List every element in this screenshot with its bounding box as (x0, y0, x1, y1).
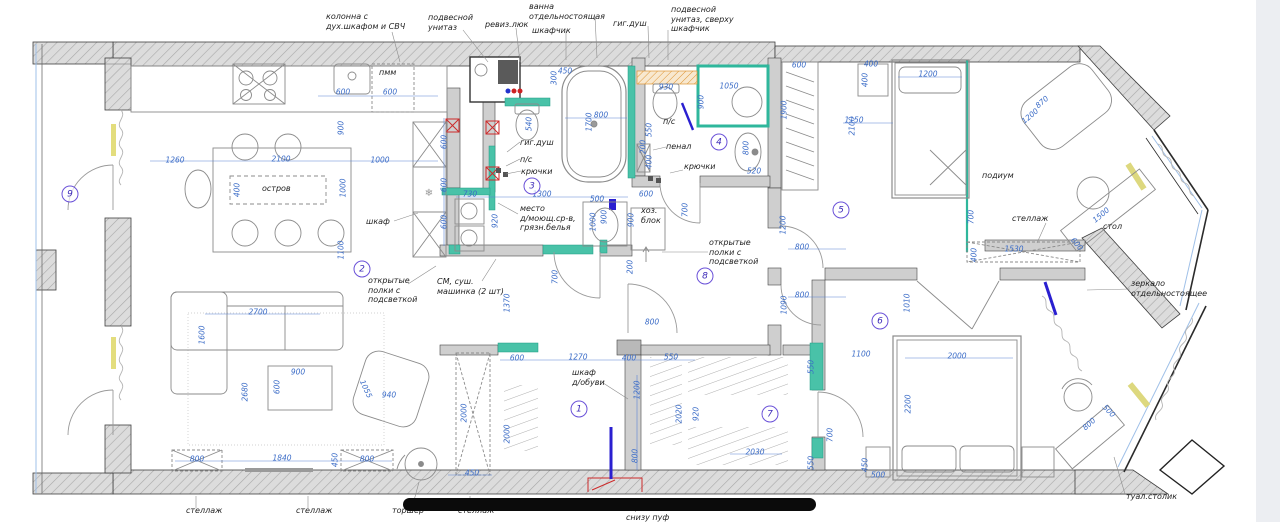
dimension-text: 800 (795, 243, 809, 252)
plan-label: крючки (684, 162, 715, 172)
dimension-text: 1000 (370, 156, 389, 165)
dimension-text: 920 (491, 214, 500, 228)
dimension-text: 520 (747, 167, 761, 176)
dimension-text: 700 (681, 203, 690, 217)
plan-label: ревиз.люк (485, 20, 528, 30)
dimension-text: 550 (664, 353, 678, 362)
plan-label: СМ, суш. машинка (2 шт) (437, 277, 504, 296)
plan-label: крючки (521, 167, 552, 177)
dimension-text: 550 (645, 123, 654, 137)
dimension-text: 200 (639, 140, 648, 154)
dimension-text: 1600 (198, 325, 207, 344)
dimension-text: 600 (336, 88, 350, 97)
dimension-text: 1100 (337, 240, 346, 259)
dimension-text: 900 (600, 210, 609, 224)
room-number-badge: 9 (62, 186, 79, 203)
dimension-text: 800 (594, 111, 608, 120)
dimension-text: 2000 (503, 424, 512, 443)
annotation-layer: колонна с дух.шкафом и СВЧподвесной унит… (0, 0, 1280, 522)
dimension-text: 2000 (947, 352, 966, 361)
room-number-badge: 7 (762, 406, 779, 423)
plan-label: шкаф (366, 217, 390, 227)
dimension-text: 450 (331, 453, 340, 467)
dimension-text: 2030 (745, 448, 764, 457)
plan-label: открытые полки с подсветкой (709, 238, 758, 267)
dimension-text: 800 (190, 455, 204, 464)
dimension-text: 1530 (1004, 245, 1023, 254)
plan-label: гиг.душ (520, 138, 554, 148)
room-number-badge: 4 (711, 134, 728, 151)
dimension-text: 900 (697, 95, 706, 109)
dimension-text: 400 (864, 60, 878, 69)
dimension-text: 1200 (633, 380, 642, 399)
dimension-text: 400 (861, 73, 870, 87)
plan-label: шкафчик (532, 26, 571, 36)
dimension-text: 600 (440, 178, 449, 192)
dimension-text: 450 (465, 469, 479, 478)
plan-label: пмм (379, 68, 396, 78)
dimension-text: 600 (273, 380, 282, 394)
room-number-badge: 1 (571, 401, 588, 418)
plan-label: подиум (982, 171, 1014, 181)
dimension-text: 500 (871, 471, 885, 480)
dimension-text: 900 (337, 121, 346, 135)
plan-label: зеркало отдельностоящее (1131, 279, 1207, 298)
plan-label: п/с (663, 117, 675, 127)
dimension-text: 2700 (248, 308, 267, 317)
room-number-badge: 6 (872, 313, 889, 330)
plan-label: остров (262, 184, 291, 194)
plan-label: шкаф д/обуви (572, 368, 605, 387)
dimension-text: 700 (967, 210, 976, 224)
dimension-text: 200 (626, 260, 635, 274)
dimension-text: 600 (792, 61, 806, 70)
dimension-text: 1900 (780, 100, 789, 119)
dimension-text: 900 (627, 213, 636, 227)
plan-label: пенал (666, 142, 691, 152)
dimension-text: 400 (622, 354, 636, 363)
plan-label: подвесной унитаз, сверху шкафчик (671, 5, 734, 34)
dimension-text: 2000 (460, 403, 469, 422)
dimension-text: 500 (1101, 403, 1117, 419)
dimension-text: 1010 (903, 293, 912, 312)
dimension-text: 1090 (780, 295, 789, 314)
dimension-text: 2680 (241, 382, 250, 401)
dimension-text: 1200 (1020, 106, 1040, 125)
dimension-text: 550 (807, 456, 816, 470)
plan-label: стеллаж (296, 506, 332, 516)
dimension-text: 540 (525, 117, 534, 131)
dimension-text: 1000 (339, 178, 348, 197)
dimension-text: 400 (645, 155, 654, 169)
dimension-text: 600 (440, 215, 449, 229)
dimension-text: 600 (510, 354, 524, 363)
dimension-text: 300 (550, 71, 559, 85)
dimension-text: 400 (233, 183, 242, 197)
plan-label: п/с (520, 155, 532, 165)
dimension-text: 550 (807, 360, 816, 374)
dimension-text: 800 (645, 318, 659, 327)
dimension-text: 2200 (904, 394, 913, 413)
dimension-text: 920 (692, 407, 701, 421)
dimension-text: 1200 (918, 70, 937, 79)
dimension-text: 1200 (779, 215, 788, 234)
dimension-text: 1050 (719, 82, 738, 91)
dimension-text: 450 (558, 67, 572, 76)
dimension-text: 1100 (851, 350, 870, 359)
plan-label: подвесной унитаз (428, 13, 473, 32)
dimension-text: 700 (826, 428, 835, 442)
dimension-text: 600 (383, 88, 397, 97)
dimension-text: 600 (440, 135, 449, 149)
plan-label: место д/моющ.ср-в, грязн.белья (520, 204, 576, 233)
dimension-text: 800 (1081, 416, 1098, 432)
plan-label: стеллаж (1012, 214, 1048, 224)
dimension-text: 1840 (272, 454, 291, 463)
dimension-text: 400 (970, 248, 979, 262)
plan-label: туал.столик (1126, 492, 1177, 502)
dimension-text: 900 (291, 368, 305, 377)
dimension-text: 800 (742, 141, 751, 155)
dimension-text: 1260 (165, 156, 184, 165)
plan-label: колонна с дух.шкафом и СВЧ (326, 12, 405, 31)
redaction-bar (403, 498, 816, 511)
dimension-text: 930 (659, 83, 673, 92)
dimension-text: 700 (551, 270, 560, 284)
plan-label: ванна отдельностоящая (529, 2, 605, 21)
plan-label: стеллаж (186, 506, 222, 516)
dimension-text: 800 (360, 455, 374, 464)
dimension-text: 2100 (848, 116, 857, 135)
dimension-text: 600 (1069, 236, 1085, 253)
dimension-text: 2100 (271, 155, 290, 164)
dimension-text: 1270 (568, 353, 587, 362)
dimension-text: 800 (631, 449, 640, 463)
room-number-badge: 8 (697, 268, 714, 285)
dimension-text: 1000 (589, 212, 598, 231)
floor-plan-canvas: ❄ (0, 0, 1280, 522)
room-number-badge: 2 (354, 261, 371, 278)
room-number-badge: 5 (833, 202, 850, 219)
dimension-text: 800 (795, 291, 809, 300)
dimension-text: 1370 (503, 293, 512, 312)
dimension-text: 450 (861, 458, 870, 472)
dimension-text: 600 (639, 190, 653, 199)
dimension-text: 2020 (675, 404, 684, 423)
room-number-badge: 3 (524, 178, 541, 195)
dimension-text: 730 (463, 190, 477, 199)
dimension-text: 1700 (585, 112, 594, 131)
dimension-text: 940 (382, 391, 396, 400)
dimension-text: 1055 (358, 378, 374, 399)
plan-label: открытые полки с подсветкой (368, 276, 417, 305)
plan-label: хоз. блок (641, 206, 661, 225)
plan-label: гиг.душ (613, 19, 647, 29)
dimension-text: 500 (590, 195, 604, 204)
plan-label: стол (1103, 222, 1122, 232)
